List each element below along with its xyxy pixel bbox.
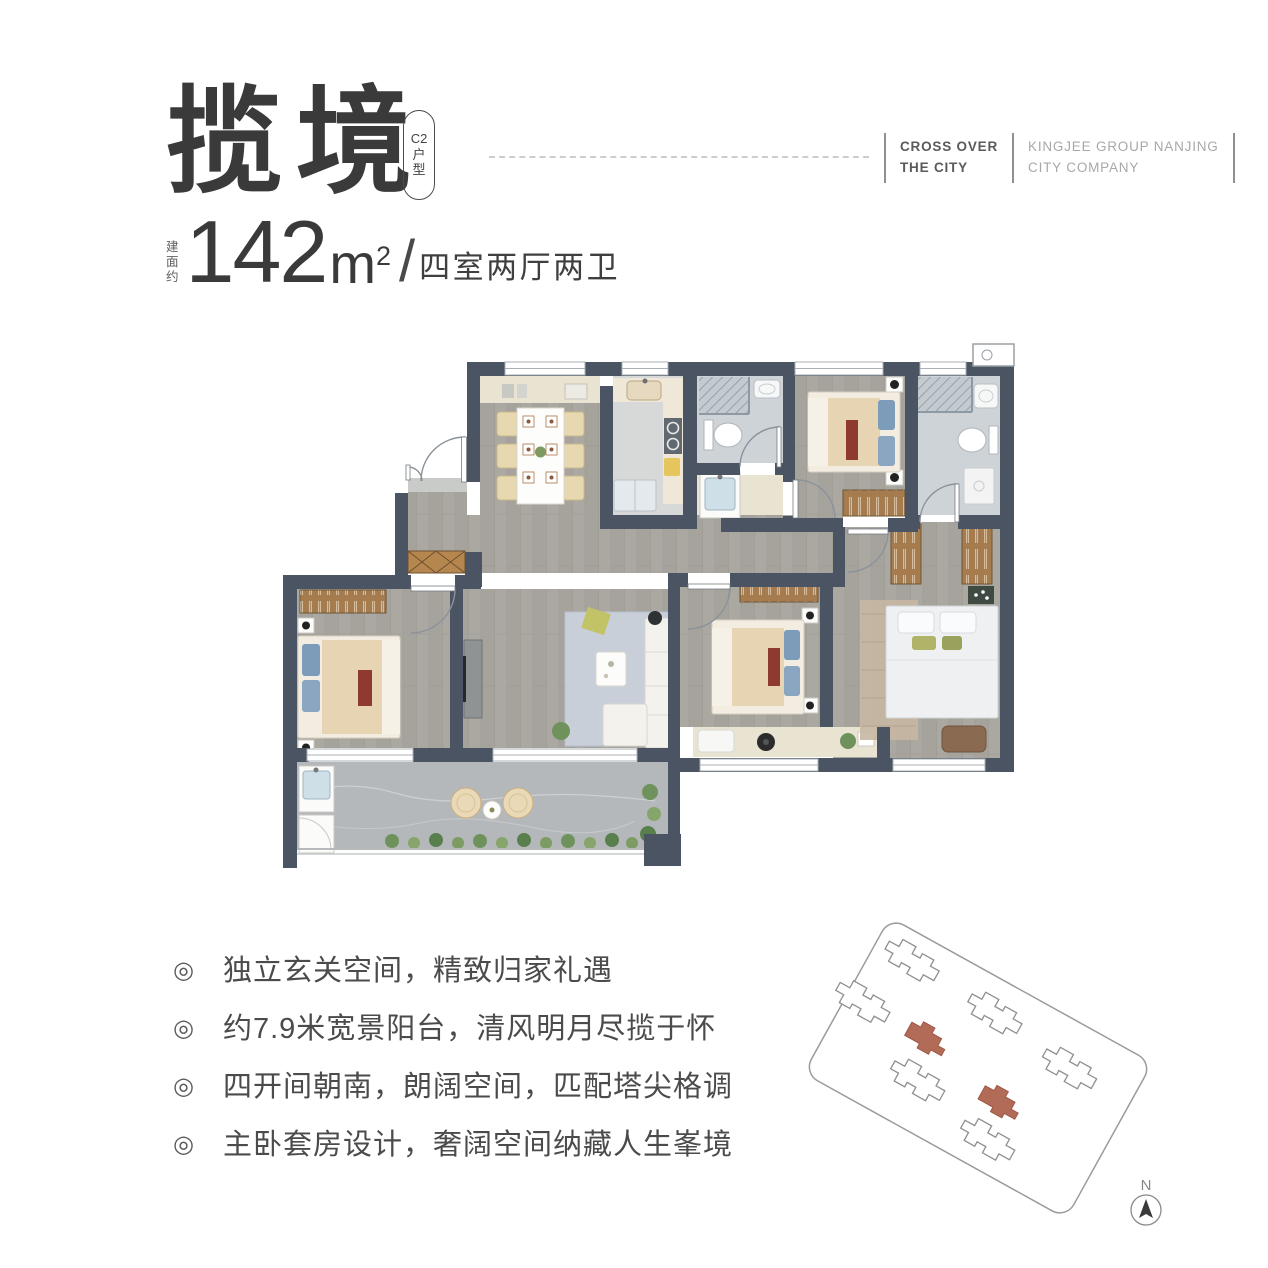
balcony-cabinet	[299, 815, 334, 853]
coffee-table	[596, 652, 626, 686]
unit-type-badge: C2 户 型	[403, 110, 435, 200]
site-boundary-group	[793, 912, 1152, 1219]
bed-3-runner	[768, 648, 780, 686]
feature-text: 约7.9米宽景阳台，清风明月尽揽于怀	[223, 1015, 716, 1044]
compass-needle	[1139, 1199, 1153, 1218]
bench	[942, 726, 986, 752]
page-title: 揽境	[166, 84, 426, 200]
accent-pillow-2	[942, 636, 962, 650]
nightstand	[968, 586, 994, 604]
pillow-4	[784, 666, 800, 696]
area-prefix-char-3: 约	[166, 270, 179, 285]
compass-label: N	[1141, 1177, 1152, 1194]
unit-type-char-2: 型	[412, 163, 425, 178]
wardrobe-4	[300, 590, 386, 613]
bath-mat	[964, 468, 994, 504]
closet-wardrobe-right	[962, 524, 992, 584]
laundry	[700, 472, 740, 518]
pillow	[878, 400, 895, 430]
feature-item: ◎ 独立玄关空间，精致归家礼遇	[173, 953, 733, 989]
poster: 揽境 C2 户 型 CROSS OVER THE CITY KINGJEE GR…	[0, 0, 1268, 1268]
area-prefix: 建 面 约	[166, 240, 179, 286]
closet-wardrobe-left	[891, 524, 921, 584]
toilet-tank	[704, 420, 713, 450]
brand-divider-1	[884, 133, 886, 183]
brand-company-line-2: CITY COMPANY	[1028, 158, 1219, 179]
feature-list: ◎ 独立玄关空间，精致归家礼遇 ◎ 约7.9米宽景阳台，清风明月尽揽于怀 ◎ 四…	[173, 953, 733, 1185]
area-spec: 建 面 约 142 m2 / 四室两厅两卫	[166, 218, 620, 287]
feature-item: ◎ 四开间朝南，朗阔空间，匹配塔尖格调	[173, 1069, 733, 1105]
table-plant	[535, 447, 546, 458]
bullet-icon: ◎	[173, 959, 194, 983]
floor-plan	[280, 338, 1016, 874]
bath-sink	[754, 380, 780, 398]
chaise	[603, 704, 647, 746]
master-toilet	[958, 428, 986, 452]
master-pillow	[898, 612, 934, 633]
brand-company-line-1: KINGJEE GROUP NANJING	[1028, 137, 1219, 158]
feature-item: ◎ 主卧套房设计，奢阔空间纳藏人生峯境	[173, 1127, 733, 1163]
ledge-plant	[840, 733, 856, 749]
entry-threshold	[408, 478, 467, 492]
entry-deco-2	[517, 384, 527, 398]
master-bath-sink	[974, 384, 998, 408]
bed-4-runner	[358, 670, 372, 706]
master-toilet-tank	[989, 426, 998, 454]
feature-item: ◎ 约7.9米宽景阳台，清风明月尽揽于怀	[173, 1011, 733, 1047]
brand-divider-3	[1233, 133, 1235, 183]
brand-slogan: CROSS OVER THE CITY	[900, 133, 998, 183]
master-shower	[918, 377, 972, 412]
accent-pillow	[912, 636, 936, 650]
dining-set	[497, 408, 584, 504]
area-prefix-char-1: 建	[166, 240, 179, 255]
entry-deco	[502, 384, 514, 398]
brand-block: CROSS OVER THE CITY KINGJEE GROUP NANJIN…	[884, 133, 1235, 183]
unit-type-code: C2	[411, 132, 428, 147]
laundry-sink	[705, 478, 735, 510]
wardrobe	[843, 490, 905, 516]
bullet-icon: ◎	[173, 1075, 194, 1099]
counter-deco	[565, 384, 587, 399]
ac-platform	[973, 344, 1014, 366]
toilet	[714, 423, 742, 447]
area-prefix-char-2: 面	[166, 255, 179, 270]
room-layout-text: 四室两厅两卫	[419, 252, 620, 287]
area-unit-exponent: 2	[376, 241, 391, 271]
pillow-3	[784, 630, 800, 660]
kitchen-sink	[627, 381, 661, 400]
brand-slogan-line-2: THE CITY	[900, 158, 998, 179]
area-value: 142	[186, 218, 327, 287]
site-boundary	[804, 917, 1153, 1218]
entry-door	[406, 437, 467, 482]
bullet-icon: ◎	[173, 1133, 194, 1157]
master-pillow-2	[940, 612, 976, 633]
brand-company: KINGJEE GROUP NANJING CITY COMPANY	[1028, 133, 1219, 183]
feature-text: 独立玄关空间，精致归家礼遇	[223, 957, 613, 986]
balcony-chair	[451, 788, 481, 818]
dotted-divider	[489, 156, 869, 158]
faucet	[643, 379, 648, 384]
balcony-chair-2	[503, 788, 533, 818]
cooktop	[664, 418, 682, 454]
pillow-5	[302, 644, 320, 676]
shower	[699, 377, 749, 414]
bay-cushion	[698, 730, 734, 752]
bullet-icon: ◎	[173, 1017, 194, 1041]
shoe-cabinet	[408, 551, 465, 573]
spec-separator: /	[399, 237, 415, 286]
feature-text: 主卧套房设计，奢阔空间纳藏人生峯境	[223, 1131, 733, 1160]
feature-text: 四开间朝南，朗阔空间，匹配塔尖格调	[223, 1073, 733, 1102]
site-plan: N	[780, 896, 1180, 1241]
tv-console	[464, 640, 482, 718]
brand-divider-2	[1012, 133, 1014, 183]
suite-vestibule-floor	[843, 527, 888, 587]
brand-slogan-line-1: CROSS OVER	[900, 137, 998, 158]
area-unit: m2	[329, 242, 391, 287]
unit-type-char-1: 户	[412, 148, 425, 163]
area-unit-letter: m	[329, 232, 376, 295]
kitchen-deco	[664, 458, 680, 476]
entry-floor	[408, 492, 467, 554]
living-plant	[552, 722, 570, 740]
bed-runner	[846, 420, 858, 460]
pillow-6	[302, 680, 320, 712]
compass-icon: N	[1131, 1177, 1161, 1225]
floor-lamp	[648, 611, 662, 625]
pillow-2	[878, 436, 895, 466]
